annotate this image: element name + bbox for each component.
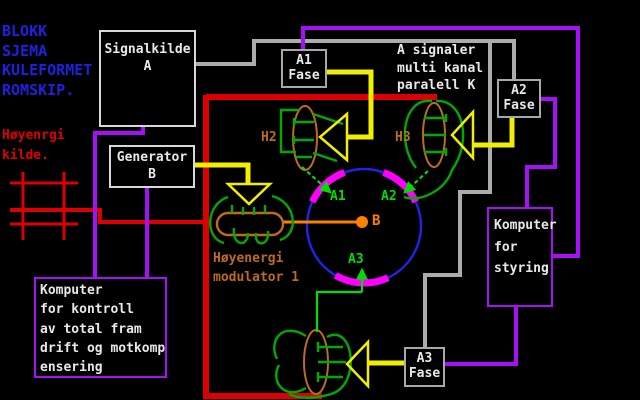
power-grid-symbol bbox=[10, 172, 78, 240]
sphere-phase-arcs bbox=[312, 172, 415, 283]
generator-box: GeneratorB bbox=[109, 145, 195, 188]
node-a1-label: A1 bbox=[330, 187, 346, 206]
a3-feed-line bbox=[317, 292, 362, 332]
energy-modulator bbox=[210, 184, 293, 243]
schematic-canvas: BLOKKSJEMAKULEFORMETROMSKIP. Høyenrgikil… bbox=[0, 0, 640, 400]
a3-phase-box: A3Fase bbox=[404, 347, 445, 387]
a1-phase-box: A1Fase bbox=[281, 49, 327, 88]
signal-note: A signalermulti kanalparalell K bbox=[397, 42, 483, 95]
modulator-horn bbox=[228, 184, 270, 204]
h2-label: H2 bbox=[261, 128, 277, 147]
h3-label: H3 bbox=[395, 128, 411, 147]
phase-feed-lines-yellow bbox=[195, 72, 512, 386]
control-computer-box: Komputerfor kontrollav total framdrift o… bbox=[34, 277, 167, 378]
b-node-dot bbox=[356, 216, 368, 228]
a2-phase-box: A2Fase bbox=[497, 79, 541, 118]
node-a2-label: A2 bbox=[381, 187, 397, 206]
energy-source-label: Høyenrgikilde. bbox=[2, 126, 65, 166]
modulator-label: Høyenergimodulator 1 bbox=[213, 249, 299, 287]
bottom-antenna bbox=[274, 270, 362, 398]
h3-antenna bbox=[404, 101, 463, 199]
page-title: BLOKKSJEMAKULEFORMETROMSKIP. bbox=[2, 22, 92, 100]
signal-source-box: SignalkildeA bbox=[99, 30, 196, 127]
b-feed-line bbox=[283, 216, 368, 228]
node-b-label: B bbox=[372, 212, 380, 231]
steering-computer-box: Komputerforstyring bbox=[487, 207, 553, 307]
node-a3-label: A3 bbox=[348, 250, 364, 269]
